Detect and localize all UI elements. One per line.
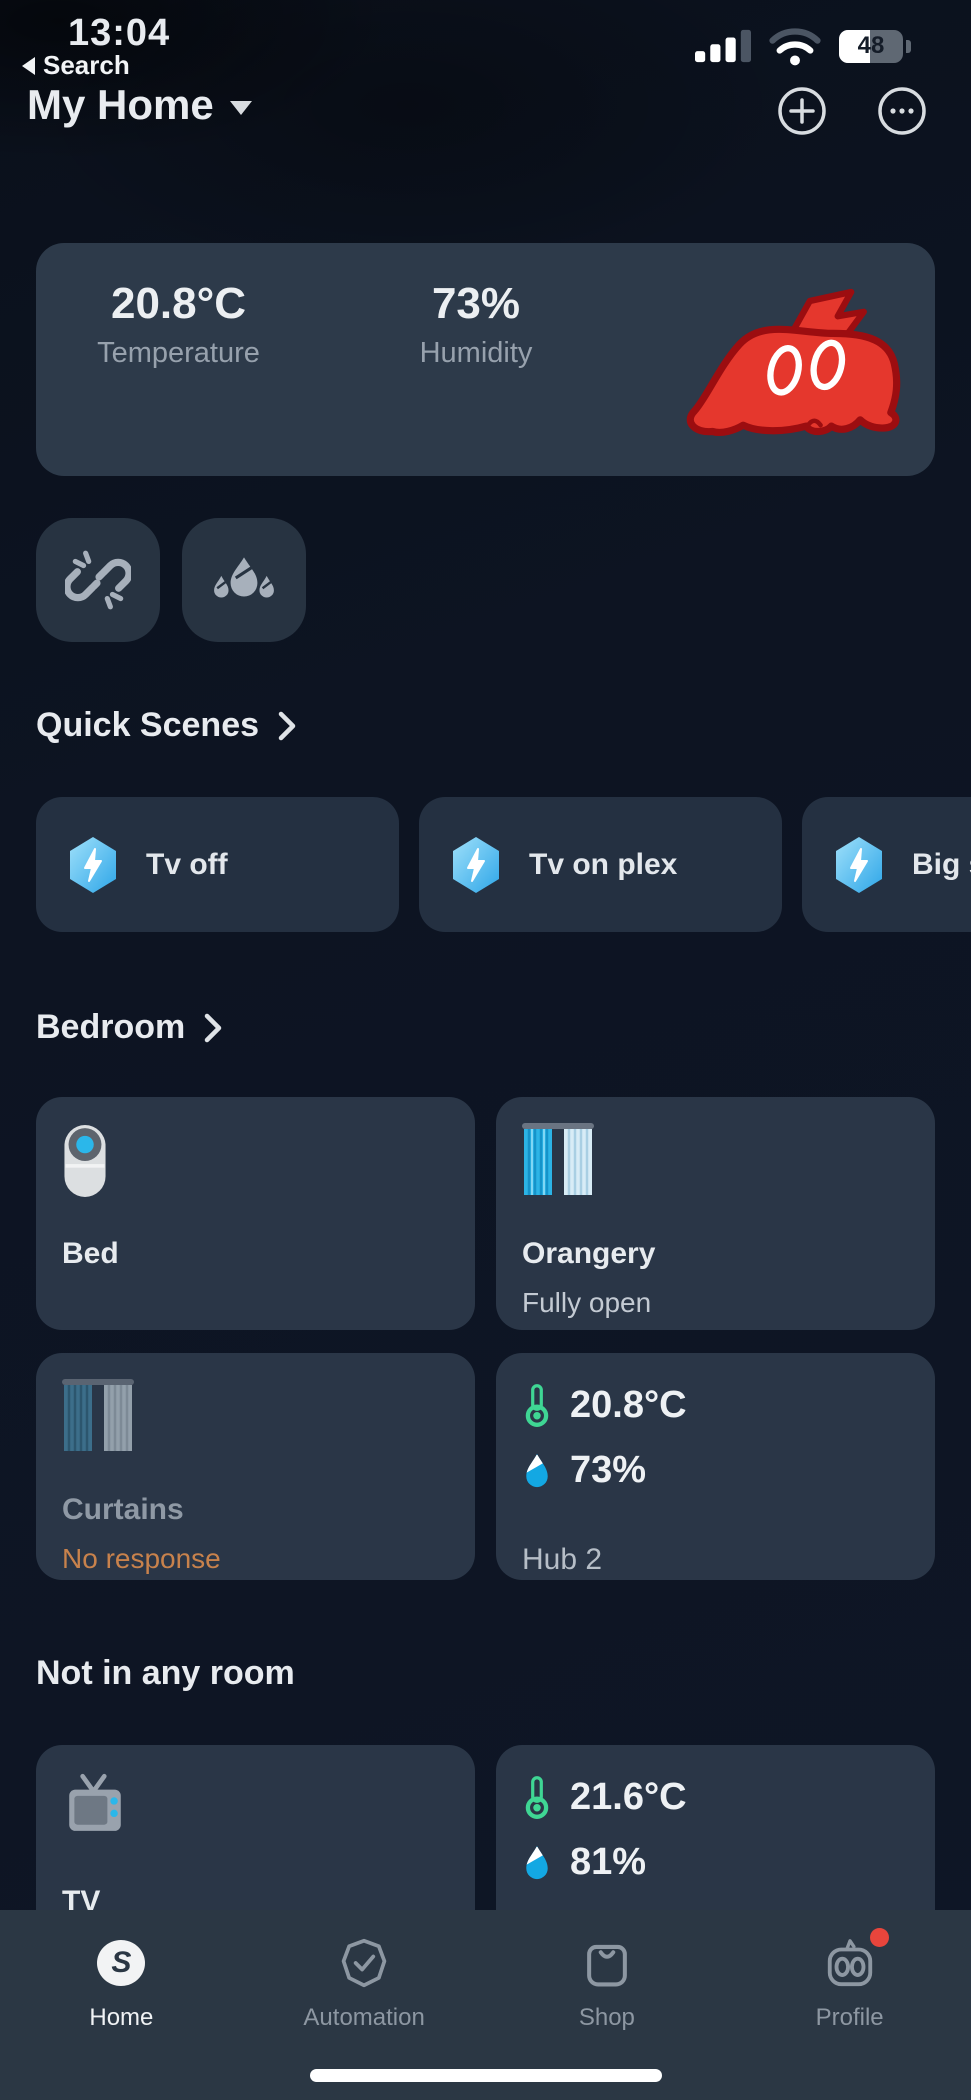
tab-label: Shop bbox=[579, 2004, 635, 2032]
summary-humidity-value: 73% bbox=[366, 279, 586, 329]
chevron-right-icon bbox=[203, 1012, 223, 1044]
quick-scenes-section-header[interactable]: Quick Scenes bbox=[36, 706, 297, 745]
device-name: Curtains bbox=[62, 1493, 184, 1527]
device-status-offline: No response bbox=[62, 1543, 221, 1575]
back-triangle-icon bbox=[22, 57, 35, 75]
back-label: Search bbox=[43, 50, 130, 81]
tab-label: Profile bbox=[816, 2004, 884, 2032]
not-in-any-room-title: Not in any room bbox=[36, 1654, 295, 1693]
home-selector-dropdown[interactable]: My Home bbox=[27, 84, 252, 126]
device-name: Hub 2 bbox=[522, 1543, 602, 1577]
scene-hexagon-lightning-icon bbox=[832, 835, 886, 895]
humidity-drop-icon bbox=[522, 1451, 552, 1491]
curtains-open-icon bbox=[522, 1123, 594, 1197]
chevron-right-icon bbox=[277, 710, 297, 742]
tab-profile[interactable]: Profile bbox=[728, 1910, 971, 2100]
thermometer-icon bbox=[522, 1775, 552, 1819]
device-status: Fully open bbox=[522, 1287, 651, 1319]
wifi-icon bbox=[768, 26, 822, 66]
home-indicator[interactable] bbox=[310, 2069, 662, 2082]
sensor-humidity-value: 81% bbox=[570, 1841, 646, 1884]
tab-home[interactable]: S Home bbox=[0, 1910, 243, 2100]
humidity-drop-icon bbox=[522, 1843, 552, 1883]
tab-label: Automation bbox=[303, 2004, 424, 2032]
hub-temperature-value: 20.8°C bbox=[570, 1384, 687, 1427]
shop-bag-icon bbox=[582, 1936, 632, 1990]
quick-scenes-title: Quick Scenes bbox=[36, 706, 259, 745]
add-button[interactable] bbox=[777, 86, 827, 136]
smartthings-home-icon: S bbox=[97, 1940, 145, 1986]
battery-nub bbox=[906, 40, 911, 53]
battery-icon: 48 bbox=[839, 30, 903, 63]
summary-humidity-label: Humidity bbox=[366, 337, 586, 370]
device-card-hub-2[interactable]: 20.8°C 73% Hub 2 bbox=[496, 1353, 935, 1580]
scene-hexagon-lightning-icon bbox=[66, 835, 120, 895]
scene-label: Tv off bbox=[146, 848, 228, 882]
summary-temperature-value: 20.8°C bbox=[71, 279, 286, 329]
battery-percent: 48 bbox=[839, 30, 903, 63]
automation-shield-check-icon bbox=[338, 1936, 390, 1990]
broken-link-icon bbox=[65, 547, 131, 613]
tv-icon bbox=[62, 1771, 128, 1833]
back-to-search-link[interactable]: Search bbox=[22, 50, 130, 81]
status-icons: 48 bbox=[695, 26, 911, 66]
device-name: Orangery bbox=[522, 1237, 655, 1271]
scene-label: Big s bbox=[912, 848, 971, 882]
scene-card-tv-on-plex[interactable]: Tv on plex bbox=[419, 797, 782, 932]
page-title: My Home bbox=[27, 84, 214, 126]
not-in-any-room-section-header: Not in any room bbox=[36, 1654, 295, 1693]
device-card-orangery[interactable]: Orangery Fully open bbox=[496, 1097, 935, 1330]
home-summary-card[interactable]: 20.8°C Temperature 73% Humidity bbox=[36, 243, 935, 476]
scene-label: Tv on plex bbox=[529, 848, 677, 882]
quick-scenes-row: Tv off Tv on plex Big s bbox=[36, 797, 971, 932]
notification-badge bbox=[870, 1928, 889, 1947]
clock: 13:04 bbox=[68, 12, 170, 55]
chevron-down-icon bbox=[230, 101, 252, 115]
smart-button-device-icon bbox=[62, 1123, 108, 1199]
water-drops-icon bbox=[211, 555, 277, 605]
red-monster-mascot-icon bbox=[673, 235, 925, 475]
water-leak-button[interactable] bbox=[182, 518, 306, 642]
hub-humidity-value: 73% bbox=[570, 1449, 646, 1492]
bedroom-section-header[interactable]: Bedroom bbox=[36, 1008, 223, 1047]
disconnected-devices-button[interactable] bbox=[36, 518, 160, 642]
summary-temperature-label: Temperature bbox=[71, 337, 286, 370]
device-card-curtains[interactable]: Curtains No response bbox=[36, 1353, 475, 1580]
curtains-offline-icon bbox=[62, 1379, 134, 1453]
profile-robot-icon bbox=[821, 1936, 879, 1990]
scene-hexagon-lightning-icon bbox=[449, 835, 503, 895]
thermometer-icon bbox=[522, 1383, 552, 1427]
scene-card-tv-off[interactable]: Tv off bbox=[36, 797, 399, 932]
sensor-temperature-value: 21.6°C bbox=[570, 1776, 687, 1819]
more-options-button[interactable] bbox=[877, 86, 927, 136]
cellular-signal-icon bbox=[695, 28, 751, 64]
scene-card-big-s[interactable]: Big s bbox=[802, 797, 971, 932]
bedroom-title: Bedroom bbox=[36, 1008, 185, 1047]
device-name: Bed bbox=[62, 1237, 119, 1271]
tab-label: Home bbox=[89, 2004, 153, 2032]
device-card-bed[interactable]: Bed bbox=[36, 1097, 475, 1330]
